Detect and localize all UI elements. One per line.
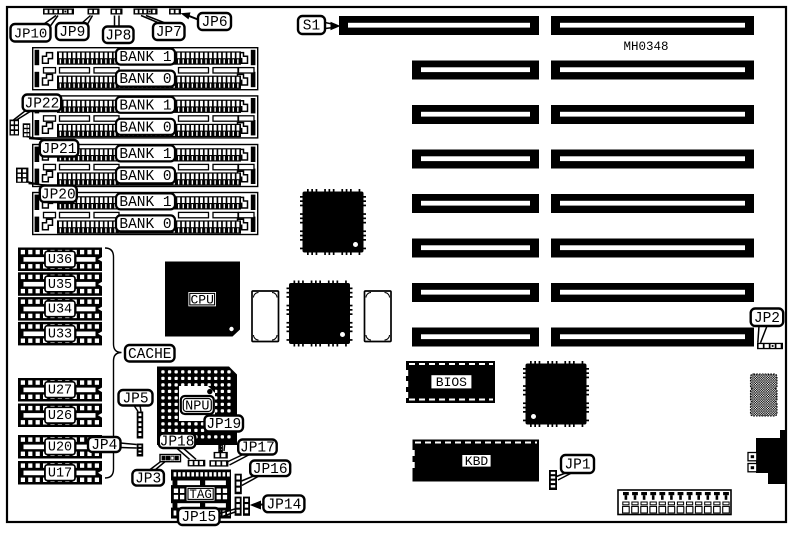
svg-text:JP6: JP6	[201, 15, 227, 31]
svg-text:BANK 1: BANK 1	[119, 195, 171, 211]
svg-text:BANK 0: BANK 0	[119, 72, 171, 88]
svg-text:CACHE: CACHE	[128, 347, 172, 363]
svg-text:CPU: CPU	[190, 293, 213, 308]
svg-text:U17: U17	[48, 467, 72, 482]
svg-text:JP22: JP22	[25, 96, 60, 112]
svg-text:U20: U20	[48, 441, 72, 456]
svg-text:BANK 0: BANK 0	[119, 169, 171, 185]
svg-text:BANK 0: BANK 0	[119, 120, 171, 136]
svg-text:U33: U33	[48, 328, 72, 343]
svg-text:MH0348: MH0348	[623, 40, 668, 54]
svg-text:TAG: TAG	[189, 488, 212, 502]
svg-text:BANK 0: BANK 0	[119, 217, 171, 233]
svg-text:JP17: JP17	[240, 441, 275, 457]
svg-text:BANK 1: BANK 1	[119, 50, 171, 66]
svg-text:JP5: JP5	[122, 391, 148, 407]
svg-text:JP2: JP2	[754, 311, 780, 327]
svg-text:U35: U35	[48, 278, 72, 293]
svg-text:JP4: JP4	[91, 438, 117, 454]
svg-text:JP7: JP7	[156, 25, 182, 41]
svg-text:JP21: JP21	[42, 142, 77, 158]
svg-text:JP10: JP10	[14, 26, 48, 42]
svg-text:JP16: JP16	[253, 462, 288, 478]
svg-text:U26: U26	[48, 409, 72, 424]
svg-text:BANK 1: BANK 1	[119, 98, 171, 114]
svg-text:JP18: JP18	[160, 434, 195, 450]
svg-text:JP1: JP1	[564, 458, 590, 474]
svg-text:JP19: JP19	[206, 417, 241, 433]
svg-text:JP9: JP9	[59, 25, 85, 41]
svg-text:NPU: NPU	[185, 400, 209, 415]
svg-text:BIOS: BIOS	[436, 375, 467, 390]
svg-text:U36: U36	[48, 253, 72, 268]
svg-text:S1: S1	[303, 19, 320, 35]
svg-text:JP3: JP3	[135, 471, 161, 487]
svg-text:JP14: JP14	[266, 497, 301, 513]
svg-text:KBD: KBD	[465, 454, 489, 469]
svg-text:JP15: JP15	[181, 510, 216, 526]
svg-text:U27: U27	[48, 384, 72, 399]
svg-text:U34: U34	[48, 303, 72, 318]
svg-text:JP8: JP8	[105, 28, 131, 44]
svg-text:JP20: JP20	[41, 187, 76, 203]
svg-text:BANK 1: BANK 1	[119, 147, 171, 163]
